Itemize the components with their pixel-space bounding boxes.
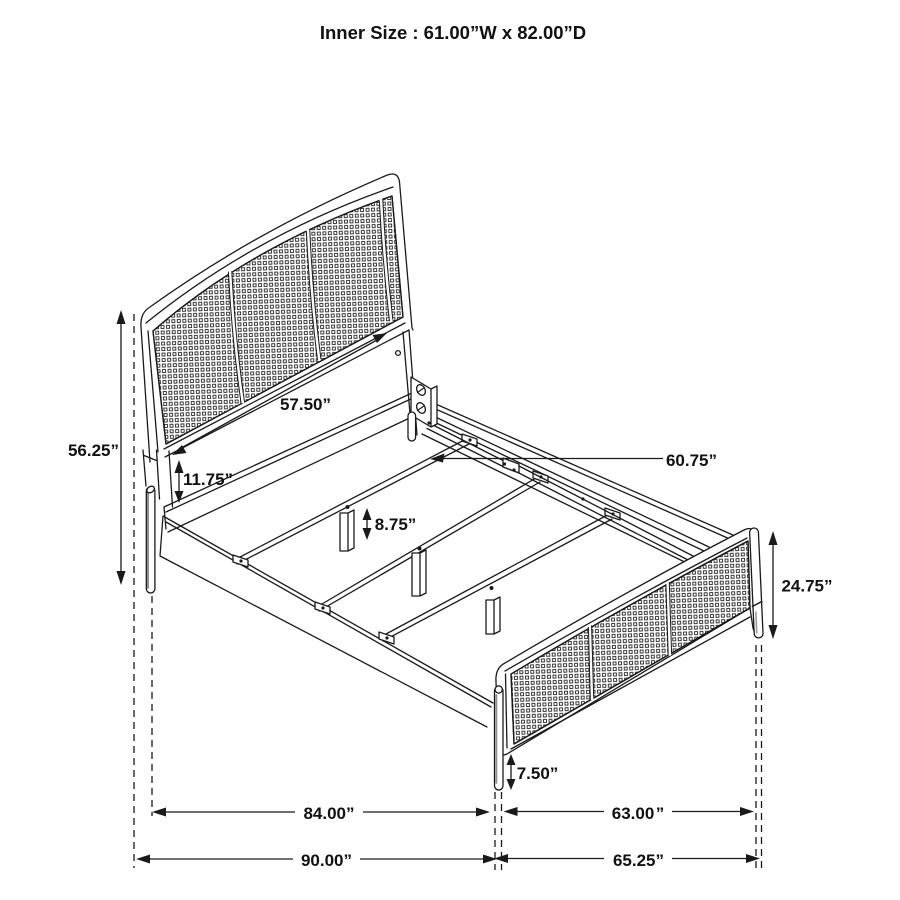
svg-text:11.75”: 11.75”	[183, 470, 233, 489]
svg-text:56.25”: 56.25”	[68, 441, 119, 460]
svg-text:Inner Size : 61.00”W x 82.00”D: Inner Size : 61.00”W x 82.00”D	[320, 22, 586, 43]
svg-text:65.25”: 65.25”	[613, 851, 664, 870]
svg-text:84.00”: 84.00”	[303, 804, 354, 823]
svg-text:8.75”: 8.75”	[375, 515, 417, 534]
svg-text:57.50”: 57.50”	[280, 395, 331, 414]
svg-text:63.00 ”: 63.00 ”	[612, 804, 664, 823]
svg-text:60.75”: 60.75”	[666, 451, 717, 470]
svg-text:7.50”: 7.50”	[517, 764, 559, 783]
svg-text:90.00”: 90.00”	[301, 851, 352, 870]
svg-text:24.75”: 24.75”	[781, 577, 832, 596]
